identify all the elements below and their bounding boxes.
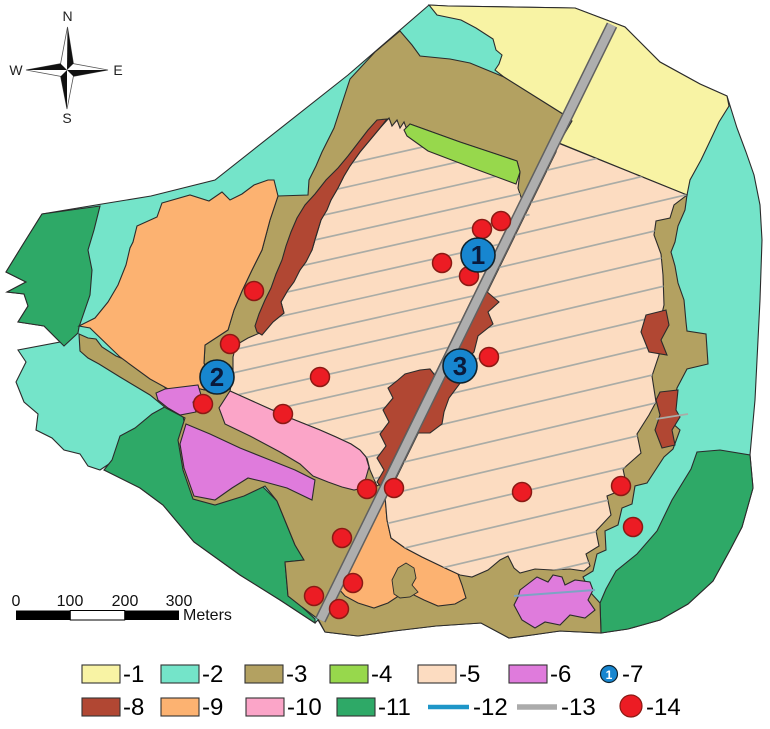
svg-text:-9: -9 (202, 694, 223, 721)
svg-text:E: E (113, 62, 122, 78)
svg-text:-10: -10 (287, 694, 322, 721)
svg-text:S: S (62, 110, 71, 126)
svg-text:-2: -2 (202, 661, 223, 688)
svg-text:2: 2 (210, 362, 224, 392)
svg-text:-6: -6 (550, 661, 571, 688)
svg-text:-5: -5 (459, 661, 480, 688)
svg-text:3: 3 (453, 351, 467, 381)
svg-text:1: 1 (471, 240, 485, 270)
svg-text:0: 0 (12, 593, 21, 610)
svg-text:N: N (62, 8, 72, 24)
svg-text:1: 1 (606, 668, 613, 682)
svg-text:-14: -14 (646, 694, 681, 721)
svg-text:200: 200 (112, 593, 139, 610)
svg-text:-13: -13 (561, 694, 596, 721)
svg-text:Meters: Meters (183, 607, 232, 624)
svg-text:-8: -8 (123, 694, 144, 721)
svg-text:-1: -1 (123, 661, 144, 688)
svg-text:-11: -11 (378, 694, 411, 721)
svg-text:-12: -12 (473, 694, 508, 721)
svg-text:100: 100 (57, 593, 84, 610)
svg-text:-3: -3 (286, 661, 307, 688)
svg-text:-7: -7 (622, 661, 643, 688)
svg-text:W: W (9, 62, 23, 78)
svg-text:-4: -4 (371, 661, 392, 688)
